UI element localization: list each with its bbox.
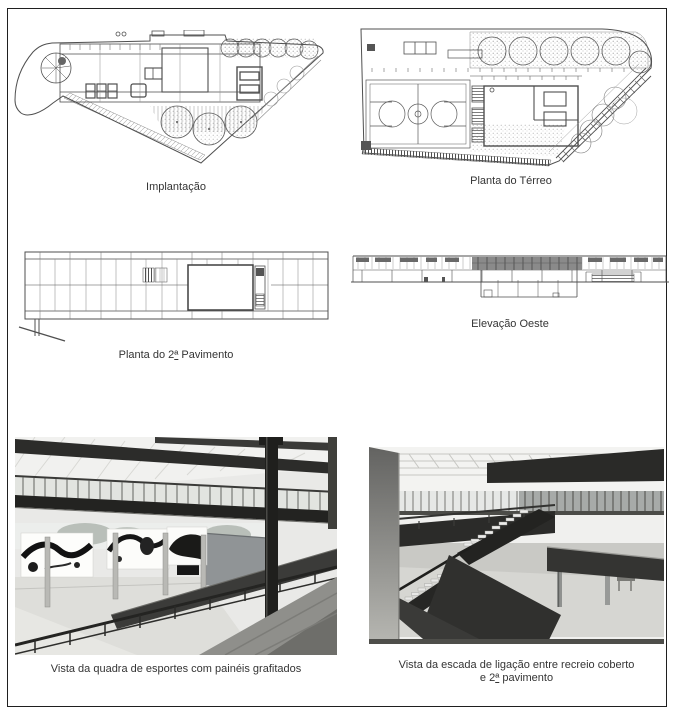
caption-text: Pavimento (178, 349, 233, 361)
caption-text: pavimento (499, 672, 553, 684)
caption-foto-quadra: Vista da quadra de esportes com painéis … (15, 663, 337, 676)
implantacao-site-plan-drawing (12, 30, 340, 176)
terreo-floor-plan-drawing (352, 24, 670, 170)
caption-foto-escada: Vista da escada de ligação entre recreio… (369, 659, 664, 685)
figure-elevacao-oeste: Elevação Oeste (348, 250, 672, 331)
foto-escada-photo (369, 447, 664, 644)
caption-elevacao-oeste: Elevação Oeste (348, 318, 672, 331)
figure-implantacao: Implantação (12, 30, 340, 194)
caption-text: Planta do 2 (119, 349, 175, 361)
caption-planta-2-pavimento: Planta do 2ª Pavimento (18, 349, 334, 362)
figure-planta-2-pavimento: Planta do 2ª Pavimento (18, 246, 334, 362)
document-page: Implantação (0, 0, 683, 718)
elevacao-oeste-drawing (348, 250, 672, 306)
figure-planta-terreo: Planta do Térreo (352, 24, 670, 188)
figure-foto-quadra: Vista da quadra de esportes com painéis … (15, 437, 337, 676)
pavimento2-floor-plan-drawing (18, 246, 334, 344)
caption-text: e 2 (480, 672, 495, 684)
caption-line-2: e 2ª pavimento (369, 672, 664, 685)
caption-planta-terreo: Planta do Térreo (352, 175, 670, 188)
caption-implantacao: Implantação (12, 181, 340, 194)
foto-quadra-photo (15, 437, 337, 655)
caption-line-1: Vista da escada de ligação entre recreio… (399, 659, 635, 671)
figure-foto-escada: Vista da escada de ligação entre recreio… (369, 447, 664, 685)
